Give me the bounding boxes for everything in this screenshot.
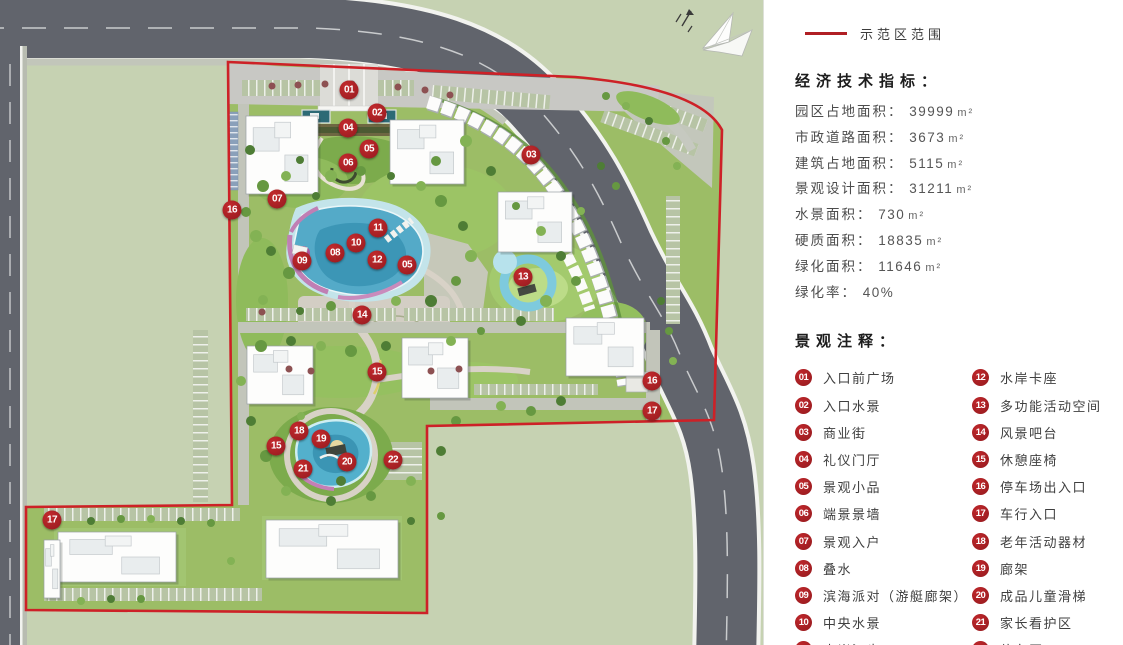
tree <box>540 295 552 307</box>
annotation-number-badge: 11 <box>795 641 812 645</box>
tree <box>77 597 85 605</box>
annotation-label: 中央水景 <box>823 613 881 632</box>
annotation-item: 08叠水 <box>795 555 968 582</box>
annotation-item: 21家长看护区 <box>972 609 1113 636</box>
tree <box>460 135 472 147</box>
tree <box>645 117 653 125</box>
annotation-label: 成品儿童滑梯 <box>1000 586 1087 605</box>
annotation-number-badge: 01 <box>795 369 812 386</box>
tree <box>526 406 536 416</box>
tree <box>177 517 185 525</box>
west-road <box>0 42 27 645</box>
annotation-number-badge: 02 <box>795 397 812 414</box>
tree <box>669 357 677 365</box>
indicator-unit: m² <box>908 210 925 222</box>
tree <box>296 307 304 315</box>
red-tree <box>447 92 454 99</box>
annotation-label: 老年活动器材 <box>1000 532 1087 551</box>
tree <box>286 336 296 346</box>
tree <box>665 327 673 335</box>
annotation-label: 景观小品 <box>823 477 881 496</box>
annotation-number-badge: 05 <box>795 478 812 495</box>
indicators-title: 经济技术指标： <box>795 70 1113 91</box>
tree <box>255 340 267 352</box>
tree <box>446 336 456 346</box>
annotation-label: 端景景墙 <box>823 504 881 523</box>
annotation-label: 水岸汀步 <box>823 640 881 645</box>
annotation-number-badge: 19 <box>972 560 989 577</box>
tree <box>486 166 496 176</box>
annotation-number-badge: 04 <box>795 451 812 468</box>
tree <box>577 207 585 215</box>
boundary-line-sample <box>805 32 847 35</box>
indicator-unit: m² <box>956 184 973 196</box>
indicator-label: 绿化面积： <box>795 259 878 274</box>
annotation-label: 停车区 <box>1000 640 1044 645</box>
annotation-number-badge: 12 <box>972 369 989 386</box>
indicator-label: 建筑占地面积： <box>795 156 909 171</box>
tree <box>241 207 251 217</box>
red-tree <box>259 309 266 316</box>
annotation-number-badge: 21 <box>972 614 989 631</box>
indicator-list: 园区占地面积： 39999m²市政道路面积： 3673m²建筑占地面积： 511… <box>795 100 1113 306</box>
tree <box>612 182 620 190</box>
tree <box>556 251 566 261</box>
annotation-item: 02入口水景 <box>795 392 968 419</box>
indicator-row: 市政道路面积： 3673m² <box>795 126 1113 152</box>
annotation-item: 05景观小品 <box>795 473 968 500</box>
indicator-row: 绿化面积： 11646m² <box>795 255 1113 281</box>
tree <box>622 102 630 110</box>
annotation-number-badge: 10 <box>795 614 812 631</box>
building <box>498 192 575 255</box>
tree <box>250 230 262 242</box>
tree <box>258 295 268 305</box>
tree <box>512 202 520 210</box>
tree <box>245 145 255 155</box>
indicator-value: 40% <box>863 285 895 300</box>
annotation-number-badge: 13 <box>972 397 989 414</box>
annotation-columns: 01入口前广场02入口水景03商业街04礼仪门厅05景观小品06端景景墙07景观… <box>795 364 1113 645</box>
red-tree <box>308 368 315 375</box>
indicator-unit: m² <box>925 262 942 274</box>
tree <box>657 297 665 305</box>
building <box>44 540 63 601</box>
indicator-value: 5115 <box>909 156 944 171</box>
building <box>247 346 316 407</box>
indicator-row: 建筑占地面积： 5115m² <box>795 152 1113 178</box>
tree <box>437 512 445 520</box>
red-tree <box>456 366 463 373</box>
annotation-number-badge: 20 <box>972 587 989 604</box>
annotation-item: 15休憩座椅 <box>972 446 1113 473</box>
tree <box>117 515 125 523</box>
tree <box>436 446 446 456</box>
annotation-label: 停车场出入口 <box>1000 477 1087 496</box>
annotation-item: 06端景景墙 <box>795 500 968 527</box>
red-tree <box>295 82 302 89</box>
annotation-number-badge: 17 <box>972 505 989 522</box>
masterplan-page: 0102040506030716111008091205131415161718… <box>0 0 1123 645</box>
annotation-item: 16停车场出入口 <box>972 473 1113 500</box>
tree <box>451 276 461 286</box>
tree <box>227 557 235 565</box>
tree <box>465 250 477 262</box>
tree <box>312 192 320 200</box>
annotation-column-left: 01入口前广场02入口水景03商业街04礼仪门厅05景观小品06端景景墙07景观… <box>795 364 968 645</box>
indicator-value: 39999 <box>909 104 954 119</box>
annotation-item: 19廊架 <box>972 555 1113 582</box>
annotation-label: 滨海派对（游艇廊架） <box>823 586 968 605</box>
indicator-label: 绿化率： <box>795 285 863 300</box>
indicator-unit: m² <box>926 236 943 248</box>
annotation-label: 家长看护区 <box>1000 613 1073 632</box>
tree <box>516 316 526 326</box>
tree <box>296 156 304 164</box>
tree <box>391 296 401 306</box>
tree <box>381 341 391 351</box>
annotations-title: 景观注释： <box>795 330 1113 351</box>
legend-panel: 示范区范围 经济技术指标： 园区占地面积： 39999m²市政道路面积： 367… <box>764 0 1123 645</box>
indicator-value: 730 <box>878 207 905 222</box>
annotation-number-badge: 16 <box>972 478 989 495</box>
annotation-item: 03商业街 <box>795 419 968 446</box>
annotation-number-badge: 07 <box>795 533 812 550</box>
boundary-legend: 示范区范围 <box>805 24 1113 43</box>
tree <box>137 595 145 603</box>
annotation-label: 车行入口 <box>1000 504 1058 523</box>
tree <box>326 301 336 311</box>
tree <box>325 170 337 182</box>
tree <box>406 476 416 486</box>
tree <box>536 226 546 236</box>
indicator-value: 3673 <box>909 130 945 145</box>
indicator-row: 水景面积： 730m² <box>795 203 1113 229</box>
tree <box>425 295 437 307</box>
tree <box>281 486 291 496</box>
annotation-item: 18老年活动器材 <box>972 528 1113 555</box>
indicator-unit: m² <box>948 133 965 145</box>
tree <box>387 172 395 180</box>
annotation-item: 09滨海派对（游艇廊架） <box>795 582 968 609</box>
red-tree <box>349 81 356 88</box>
annotation-column-right: 12水岸卡座13多功能活动空间14风景吧台15休憩座椅16停车场出入口17车行入… <box>972 364 1113 645</box>
annotation-item: 20成品儿童滑梯 <box>972 582 1113 609</box>
red-tree <box>322 81 329 88</box>
annotation-item: 22停车区 <box>972 636 1113 645</box>
site-plan-image <box>0 0 763 645</box>
tree <box>556 396 566 406</box>
indicator-label: 水景面积： <box>795 207 878 222</box>
tree <box>297 412 305 420</box>
tree <box>107 595 115 603</box>
annotation-item: 14风景吧台 <box>972 419 1113 446</box>
indicator-value: 11646 <box>878 259 922 274</box>
building <box>390 120 467 187</box>
tree <box>236 376 246 386</box>
annotation-label: 入口水景 <box>823 396 881 415</box>
building <box>58 532 179 585</box>
annotation-number-badge: 18 <box>972 533 989 550</box>
red-tree <box>428 368 435 375</box>
annotation-number-badge: 08 <box>795 560 812 577</box>
red-tree <box>286 366 293 373</box>
tree <box>283 267 295 279</box>
tree <box>207 519 215 527</box>
annotation-item: 01入口前广场 <box>795 364 968 391</box>
indicator-unit: m² <box>957 107 974 119</box>
tree <box>266 246 276 256</box>
tree <box>407 517 415 525</box>
tree <box>87 517 95 525</box>
building <box>246 116 321 197</box>
tree <box>260 450 272 462</box>
indicator-value: 31211 <box>909 181 953 196</box>
tree <box>431 156 441 166</box>
boundary-legend-label: 示范区范围 <box>860 24 945 43</box>
tree <box>496 401 506 411</box>
annotation-item: 07景观入户 <box>795 528 968 555</box>
annotation-label: 休憩座椅 <box>1000 450 1058 469</box>
annotation-label: 水岸卡座 <box>1000 368 1058 387</box>
tree <box>257 180 269 192</box>
annotation-label: 多功能活动空间 <box>1000 396 1102 415</box>
annotation-number-badge: 06 <box>795 505 812 522</box>
indicator-row: 景观设计面积： 31211m² <box>795 177 1113 203</box>
tree <box>356 166 366 176</box>
annotation-label: 商业街 <box>823 423 867 442</box>
annotation-item: 13多功能活动空间 <box>972 392 1113 419</box>
annotation-label: 入口前广场 <box>823 368 896 387</box>
building <box>566 318 647 379</box>
annotation-item: 12水岸卡座 <box>972 364 1113 391</box>
tree <box>602 92 610 100</box>
tree <box>597 162 605 170</box>
indicator-label: 硬质面积： <box>795 233 878 248</box>
annotation-label: 礼仪门厅 <box>823 450 881 469</box>
red-tree <box>269 83 276 90</box>
tree <box>326 496 336 506</box>
indicator-label: 景观设计面积： <box>795 181 909 196</box>
tree <box>662 137 670 145</box>
tree <box>246 416 256 426</box>
indicator-label: 园区占地面积： <box>795 104 909 119</box>
annotation-item: 17车行入口 <box>972 500 1113 527</box>
annotation-label: 叠水 <box>823 559 852 578</box>
annotation-number-badge: 09 <box>795 587 812 604</box>
indicator-unit: m² <box>947 159 964 171</box>
indicator-label: 市政道路面积： <box>795 130 909 145</box>
tree <box>336 476 346 486</box>
tree <box>458 221 468 231</box>
tree <box>316 341 326 351</box>
annotation-item: 10中央水景 <box>795 609 968 636</box>
tree <box>477 327 485 335</box>
red-tree <box>395 84 402 91</box>
tree <box>435 195 447 207</box>
indicator-row: 硬质面积： 18835m² <box>795 229 1113 255</box>
tree <box>366 491 376 501</box>
central-lake <box>286 198 430 302</box>
annotation-number-badge: 14 <box>972 424 989 441</box>
red-tree <box>422 87 429 94</box>
annotation-label: 廊架 <box>1000 559 1029 578</box>
tree <box>147 515 155 523</box>
tree <box>673 162 681 170</box>
tree <box>345 345 357 357</box>
annotation-label: 景观入户 <box>823 532 881 551</box>
annotation-label: 风景吧台 <box>1000 423 1058 442</box>
annotation-number-badge: 03 <box>795 424 812 441</box>
indicator-row: 园区占地面积： 39999m² <box>795 100 1113 126</box>
building <box>266 520 401 581</box>
tree <box>416 181 426 191</box>
annotation-number-badge: 15 <box>972 451 989 468</box>
tree <box>571 276 581 286</box>
site-plan: 0102040506030716111008091205131415161718… <box>0 0 764 645</box>
indicator-row: 绿化率： 40% <box>795 281 1113 307</box>
annotation-item: 11水岸汀步 <box>795 636 968 645</box>
annotation-item: 04礼仪门厅 <box>795 446 968 473</box>
tree <box>281 171 291 181</box>
annotation-number-badge: 22 <box>972 641 989 645</box>
indicator-value: 18835 <box>878 233 923 248</box>
